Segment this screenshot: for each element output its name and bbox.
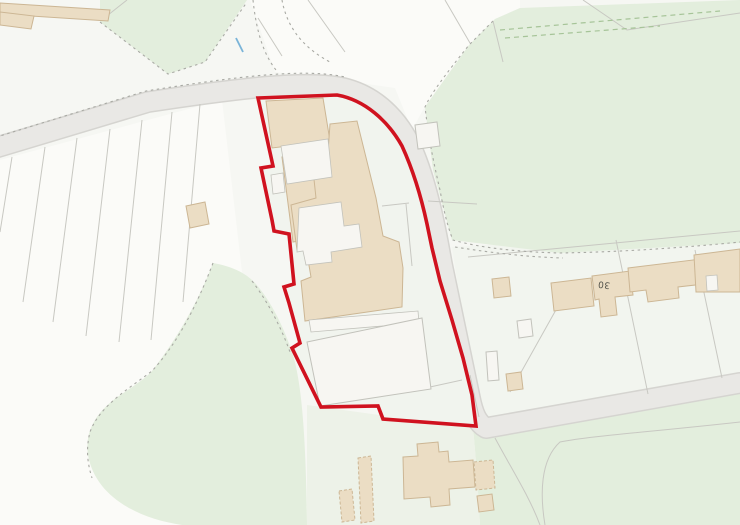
terrace-house-1 [551, 278, 594, 311]
building-west-small [186, 202, 209, 228]
shed-tan-east-2 [506, 372, 523, 391]
site-courtyard-upper [281, 139, 332, 184]
house-number-label: 30 [597, 278, 611, 289]
greenhouse-east [486, 351, 499, 381]
shed-white-north [415, 122, 440, 149]
terrace-house-3-notch [706, 275, 718, 291]
shed-tan-east-1 [492, 277, 511, 298]
house-south-small [477, 494, 494, 512]
shed-white-east [517, 319, 533, 338]
house-south-ext [474, 460, 495, 490]
map-canvas[interactable]: 30 [0, 0, 740, 525]
map-svg [0, 0, 740, 525]
site-courtyard-notch [271, 173, 285, 194]
